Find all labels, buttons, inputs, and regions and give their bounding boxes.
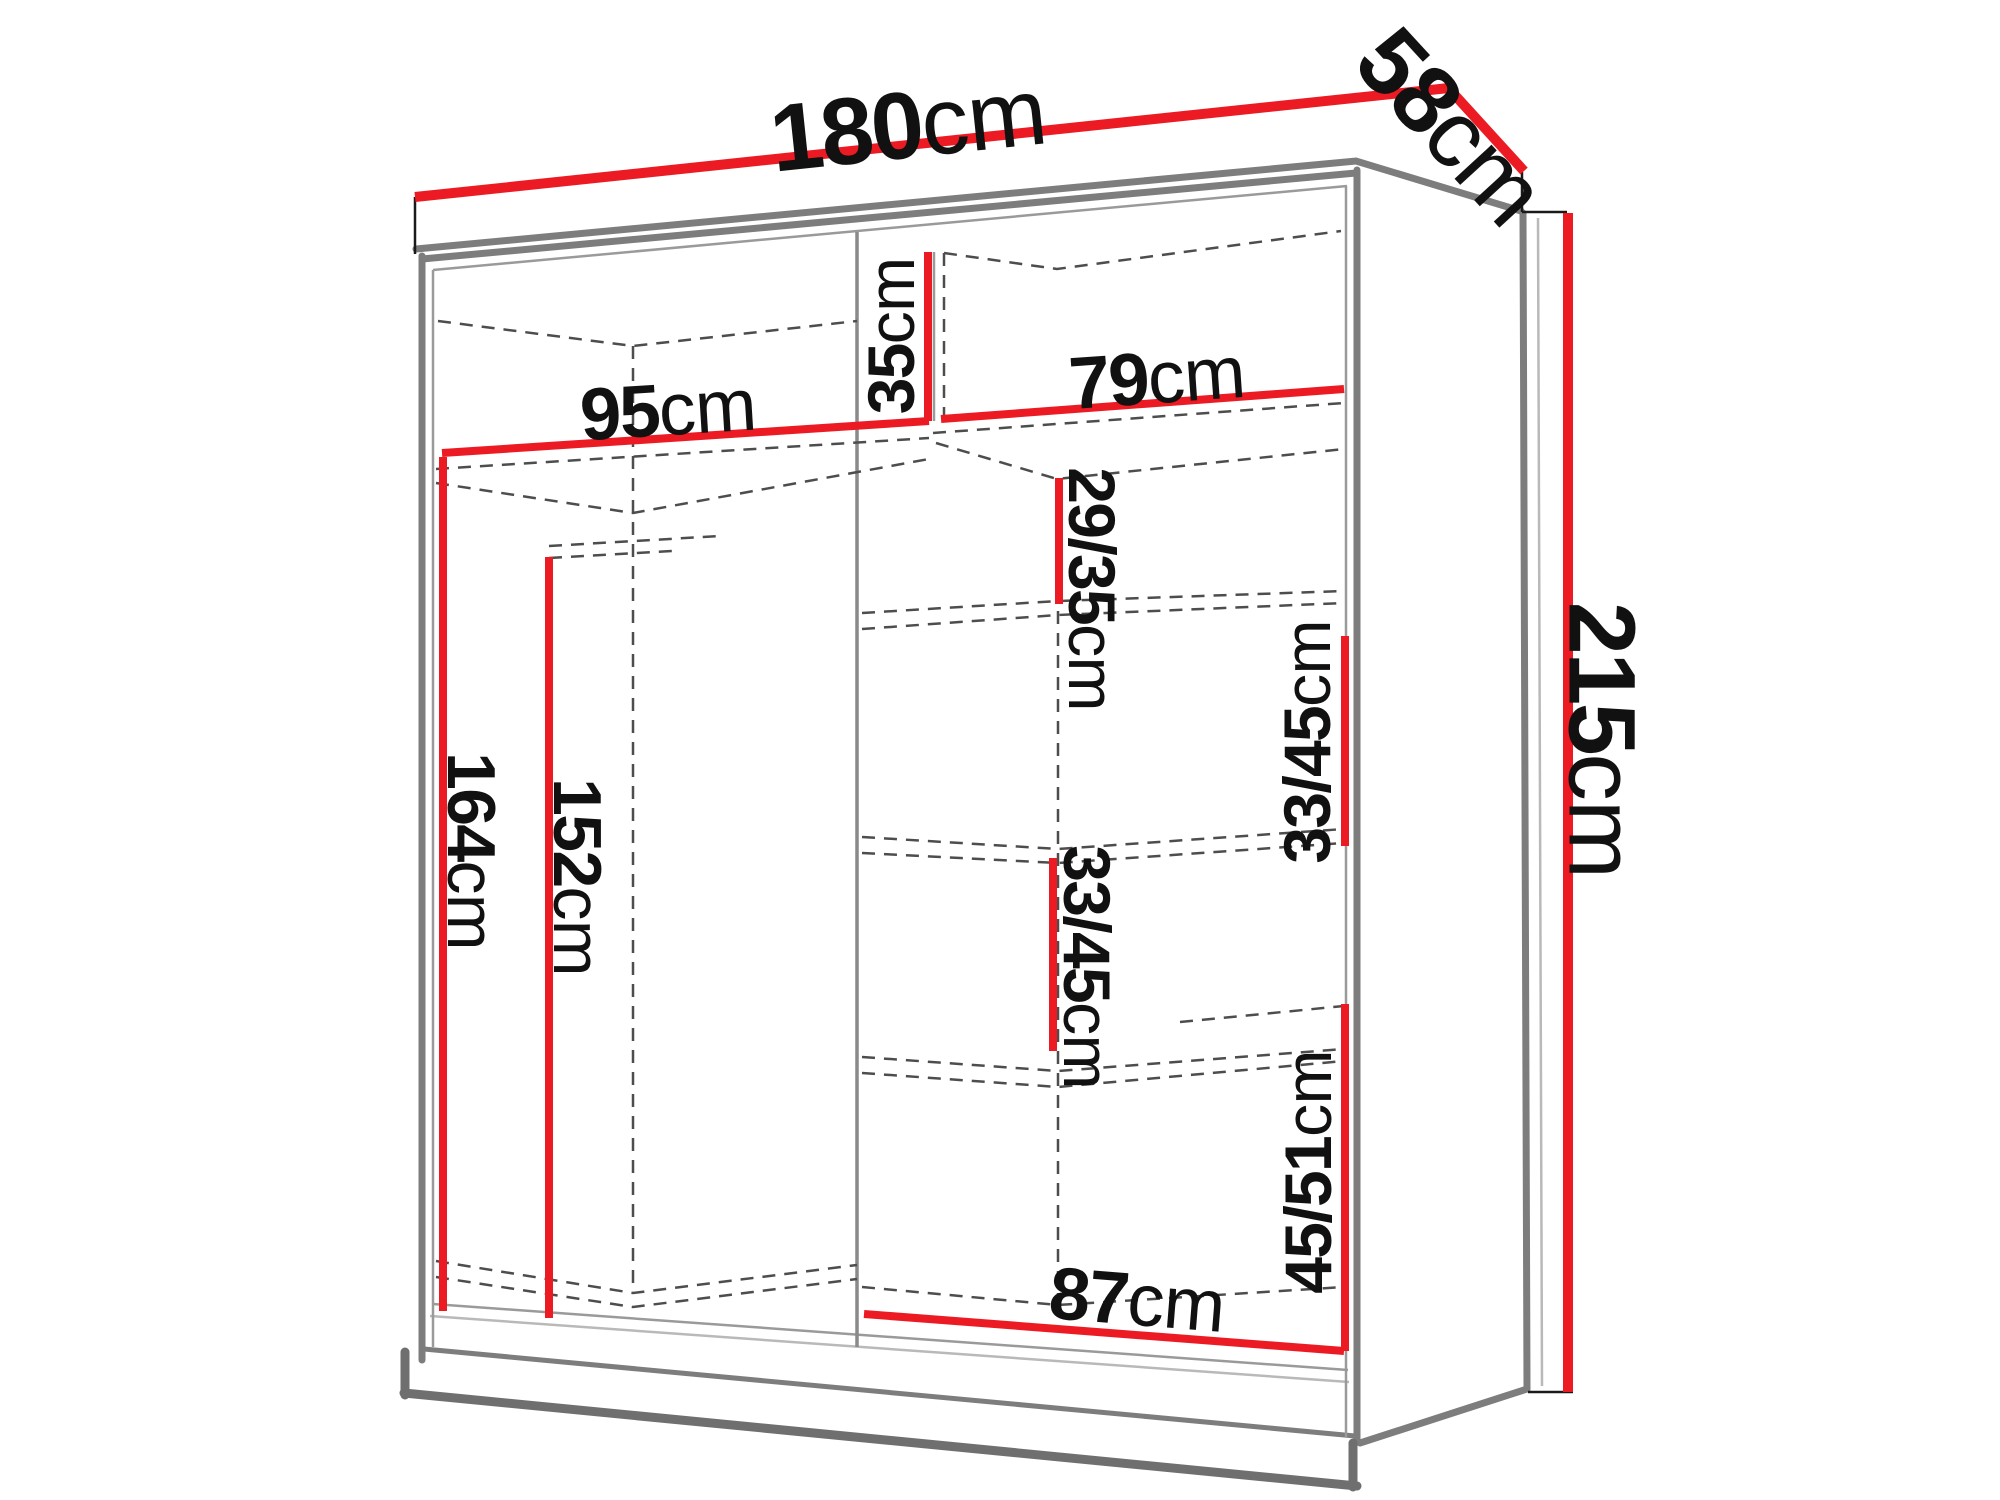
right-ceiling-dashed [944, 231, 1341, 269]
wardrobe-dimension-diagram: 180cm 58cm 215cm 95cm 35cm 79cm 29/35cm … [0, 0, 2000, 1500]
dim-label-right-gap-upper: 33/45cm [1274, 620, 1340, 864]
shelf-band4-c [1180, 1006, 1344, 1022]
plinth-top-edge [424, 1349, 1355, 1436]
dim-label-right-gap-top: 29/35cm [1059, 467, 1125, 711]
diagram-linework [0, 0, 2000, 1500]
dimension-lines [415, 88, 1568, 1392]
dim-label-bottom-shelf-width: 87cm [1046, 1256, 1227, 1344]
bottom-outer-edge [404, 1393, 1357, 1486]
shelf79-underside-dashed [936, 443, 1344, 479]
dim-label-top-shelf-height: 35cm [858, 258, 924, 415]
dim-label-top-shelf-right-width: 79cm [1067, 335, 1248, 421]
dim-label-hanging-height-inner: 152cm [543, 778, 611, 976]
dim-label-hanging-height-outer: 164cm [437, 752, 505, 950]
side-bottom-edge [1360, 1389, 1527, 1443]
side-back-edge [1523, 213, 1527, 1389]
rail-dashed-1 [549, 536, 720, 546]
side-shadow-line [1538, 218, 1542, 1386]
shelf95-underside-dashed [436, 459, 929, 513]
left-floor-dashed-2 [436, 1277, 857, 1307]
dim-label-top-shelf-left-width: 95cm [578, 368, 758, 453]
dim-label-height: 215cm [1554, 602, 1649, 878]
dim-label-right-gap-bottom: 45/51cm [1275, 1050, 1341, 1294]
dim-label-right-gap-lower: 33/45cm [1054, 845, 1120, 1089]
left-ceiling-dashed [438, 321, 857, 346]
rail-dashed-2 [549, 551, 672, 558]
left-floor-dashed-1 [436, 1261, 857, 1293]
